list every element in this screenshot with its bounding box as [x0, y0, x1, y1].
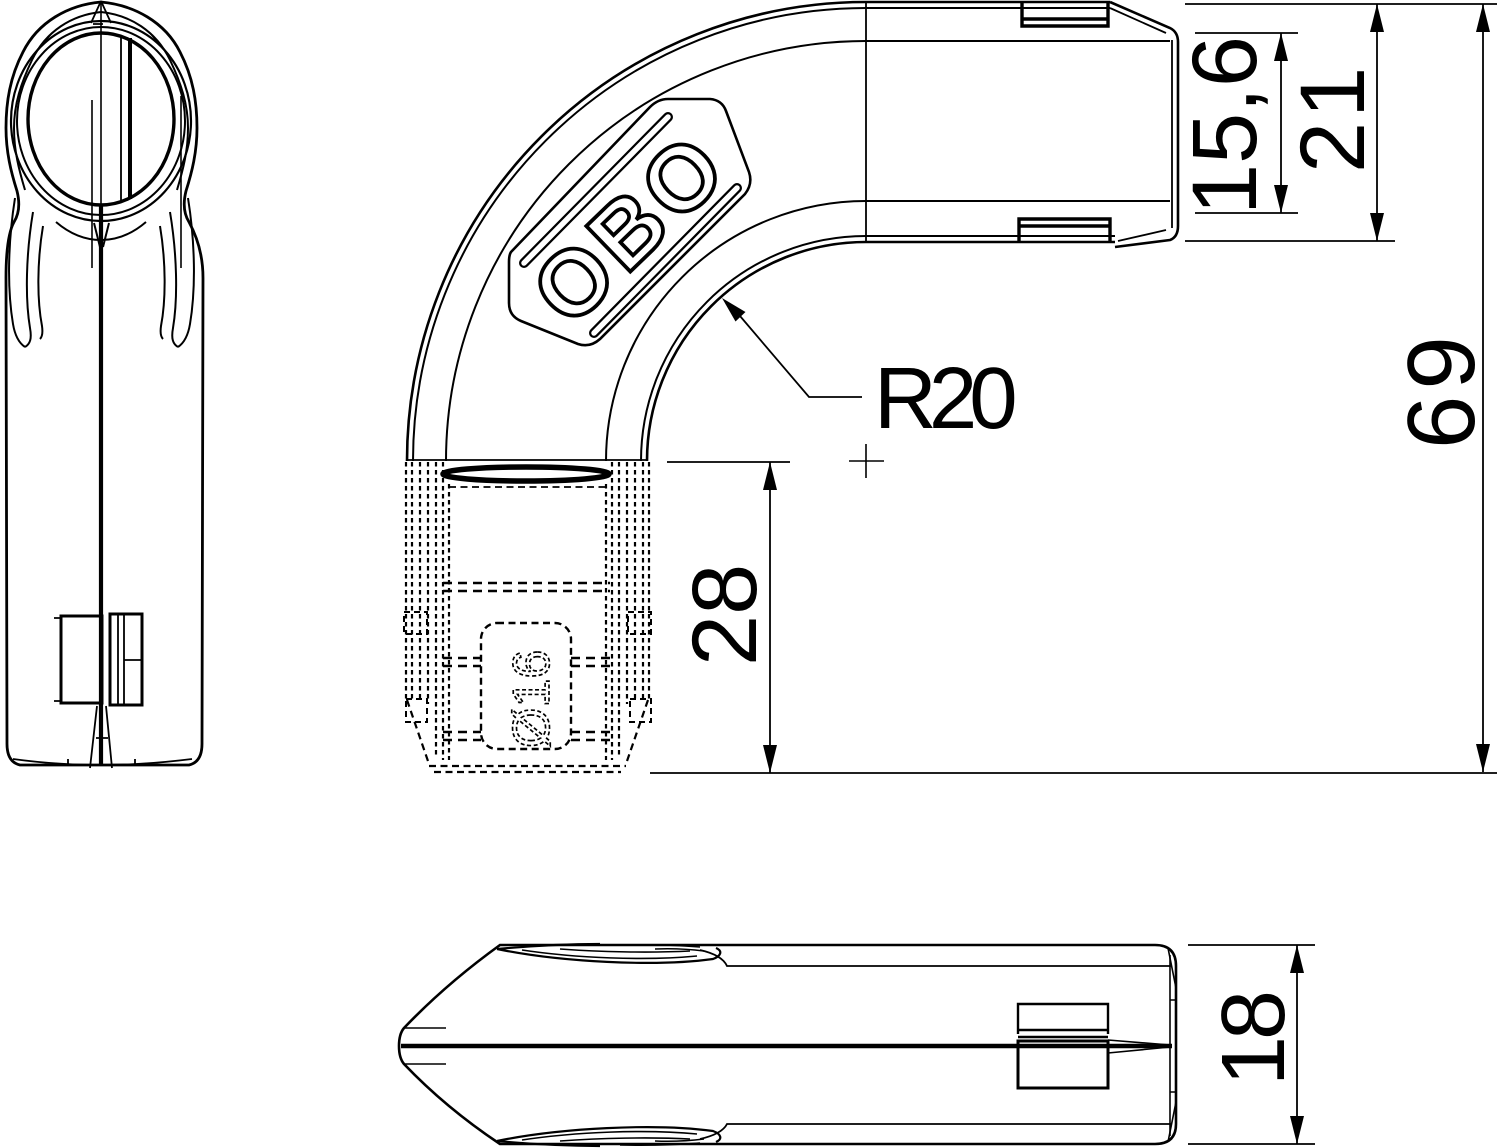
svg-text:18: 18 — [1204, 993, 1304, 1086]
svg-text:R20: R20 — [874, 350, 1014, 447]
svg-text:28: 28 — [674, 564, 776, 666]
svg-text:69: 69 — [1388, 330, 1495, 449]
svg-text:Ø16: Ø16 — [503, 650, 561, 748]
svg-text:15,6: 15,6 — [1174, 36, 1276, 215]
svg-text:21: 21 — [1282, 63, 1384, 173]
